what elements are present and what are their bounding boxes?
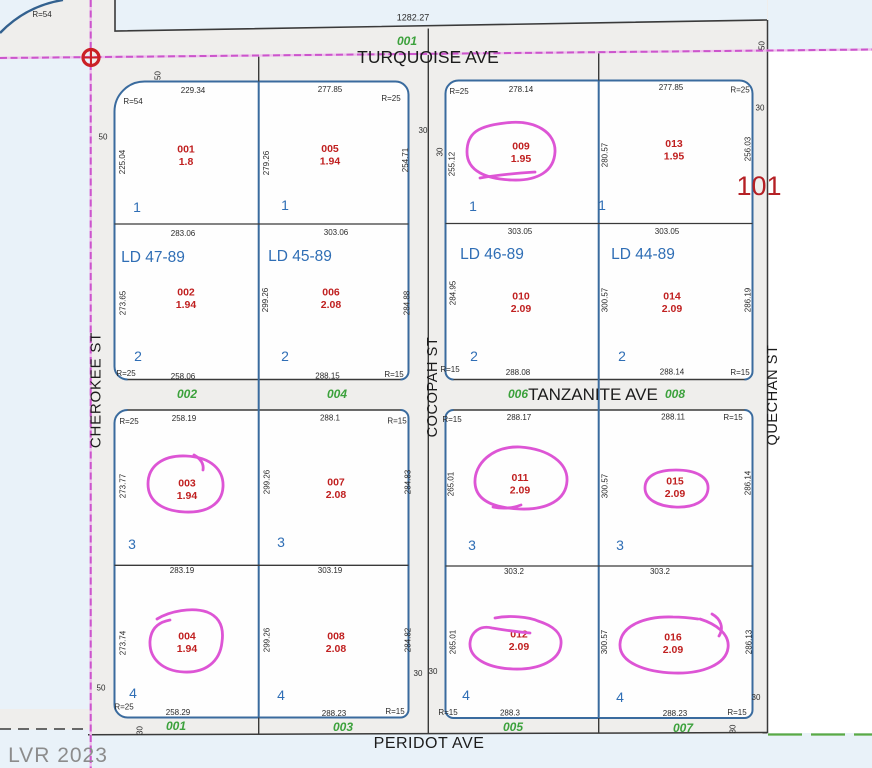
- svg-text:303.2: 303.2: [504, 567, 525, 576]
- svg-text:258.06: 258.06: [171, 372, 196, 381]
- svg-text:50: 50: [97, 684, 106, 693]
- svg-text:283.19: 283.19: [170, 566, 195, 575]
- svg-text:LD 45-89: LD 45-89: [268, 248, 332, 265]
- svg-text:2.08: 2.08: [321, 299, 342, 311]
- svg-text:PERIDOT AVE: PERIDOT AVE: [374, 735, 485, 752]
- svg-text:30: 30: [419, 126, 428, 135]
- svg-text:273.77: 273.77: [119, 473, 128, 498]
- svg-text:R=15: R=15: [730, 368, 750, 377]
- svg-text:299.26: 299.26: [263, 627, 272, 652]
- svg-text:R=15: R=15: [384, 370, 404, 379]
- svg-text:R=15: R=15: [442, 415, 462, 424]
- svg-text:2: 2: [134, 348, 142, 364]
- svg-text:3: 3: [468, 537, 476, 553]
- svg-text:30: 30: [756, 104, 765, 113]
- svg-text:30: 30: [414, 669, 423, 678]
- svg-text:50: 50: [758, 41, 767, 50]
- svg-text:303.19: 303.19: [318, 566, 343, 575]
- svg-text:4: 4: [616, 689, 624, 705]
- svg-text:004: 004: [327, 387, 347, 401]
- svg-text:303.05: 303.05: [508, 227, 533, 236]
- svg-text:1: 1: [598, 197, 606, 213]
- svg-text:2: 2: [281, 348, 289, 364]
- svg-text:006: 006: [322, 287, 340, 299]
- svg-text:R=25: R=25: [114, 703, 134, 712]
- svg-text:258.29: 258.29: [166, 708, 191, 717]
- svg-text:279.26: 279.26: [262, 150, 271, 175]
- svg-text:R=25: R=25: [449, 87, 469, 96]
- svg-text:007: 007: [673, 721, 694, 735]
- svg-text:277.85: 277.85: [659, 83, 684, 92]
- svg-text:254.71: 254.71: [401, 147, 410, 172]
- svg-text:303.05: 303.05: [655, 227, 680, 236]
- svg-text:R=54: R=54: [123, 97, 143, 106]
- svg-text:300.57: 300.57: [601, 287, 610, 312]
- svg-text:3: 3: [616, 537, 624, 553]
- svg-text:QUECHAN ST: QUECHAN ST: [765, 344, 781, 445]
- svg-text:283.06: 283.06: [171, 229, 196, 238]
- svg-text:300.57: 300.57: [601, 473, 610, 498]
- svg-text:1.94: 1.94: [176, 299, 197, 311]
- svg-text:288.11: 288.11: [661, 413, 685, 422]
- svg-text:007: 007: [327, 477, 345, 489]
- svg-text:2.09: 2.09: [510, 485, 531, 497]
- svg-text:R=15: R=15: [723, 413, 743, 422]
- svg-text:R=54: R=54: [32, 10, 52, 19]
- svg-text:001: 001: [397, 34, 417, 48]
- svg-text:300.57: 300.57: [600, 629, 609, 654]
- svg-text:288.14: 288.14: [660, 368, 685, 377]
- svg-text:002: 002: [177, 387, 197, 401]
- svg-text:008: 008: [665, 387, 685, 401]
- svg-text:255.12: 255.12: [448, 151, 457, 176]
- svg-text:50: 50: [99, 133, 108, 142]
- svg-text:101: 101: [736, 171, 781, 201]
- svg-text:R=25: R=25: [730, 86, 750, 95]
- svg-text:299.26: 299.26: [261, 287, 270, 312]
- svg-text:225.04: 225.04: [118, 149, 127, 174]
- svg-text:258.19: 258.19: [172, 414, 197, 423]
- svg-text:TURQUOISE AVE: TURQUOISE AVE: [357, 47, 499, 67]
- svg-text:2.09: 2.09: [665, 488, 686, 500]
- svg-text:2.09: 2.09: [511, 303, 532, 315]
- svg-text:286.19: 286.19: [744, 287, 753, 312]
- svg-text:1.94: 1.94: [177, 490, 198, 502]
- svg-text:2: 2: [618, 348, 626, 364]
- svg-text:30: 30: [752, 693, 761, 702]
- svg-text:R=15: R=15: [387, 417, 407, 426]
- svg-text:288.08: 288.08: [506, 368, 531, 377]
- svg-text:286.14: 286.14: [744, 470, 753, 495]
- svg-text:2.09: 2.09: [663, 644, 684, 656]
- svg-text:R=25: R=25: [116, 369, 136, 378]
- svg-text:011: 011: [512, 472, 529, 484]
- svg-text:2.09: 2.09: [509, 641, 530, 653]
- svg-text:1.94: 1.94: [320, 156, 341, 168]
- svg-text:303.2: 303.2: [650, 567, 671, 576]
- svg-text:1282.27: 1282.27: [397, 13, 430, 23]
- svg-text:002: 002: [177, 287, 195, 299]
- svg-text:R=25: R=25: [381, 94, 401, 103]
- svg-text:50: 50: [154, 71, 163, 80]
- svg-text:010: 010: [512, 291, 530, 303]
- svg-text:2.08: 2.08: [326, 489, 347, 501]
- svg-text:1.8: 1.8: [179, 156, 194, 168]
- svg-text:286.13: 286.13: [745, 629, 754, 654]
- svg-text:277.85: 277.85: [318, 85, 343, 94]
- svg-text:288.17: 288.17: [507, 413, 532, 422]
- svg-text:30: 30: [436, 147, 445, 156]
- svg-text:009: 009: [512, 141, 530, 153]
- svg-text:LVR 2023: LVR 2023: [8, 744, 108, 767]
- svg-text:003: 003: [178, 478, 196, 490]
- svg-text:1.95: 1.95: [511, 153, 532, 165]
- svg-text:001: 001: [177, 144, 195, 156]
- svg-text:30: 30: [429, 667, 438, 676]
- svg-text:TANZANITE AVE: TANZANITE AVE: [528, 385, 658, 404]
- svg-text:R=15: R=15: [727, 708, 747, 717]
- svg-text:256.03: 256.03: [744, 136, 753, 161]
- svg-text:R=15: R=15: [440, 365, 460, 374]
- svg-text:COCOPAH ST: COCOPAH ST: [425, 337, 441, 438]
- svg-text:280.57: 280.57: [601, 142, 610, 167]
- svg-text:1: 1: [469, 198, 477, 214]
- svg-text:265.01: 265.01: [449, 629, 458, 654]
- svg-text:288.23: 288.23: [322, 709, 347, 718]
- svg-text:015: 015: [666, 476, 684, 488]
- svg-text:006: 006: [508, 387, 528, 401]
- svg-text:1.95: 1.95: [664, 151, 685, 163]
- svg-text:CHEROKEE ST: CHEROKEE ST: [88, 332, 105, 448]
- svg-text:3: 3: [277, 534, 285, 550]
- svg-text:284.88: 284.88: [403, 290, 412, 315]
- svg-text:2.09: 2.09: [662, 303, 683, 315]
- svg-text:016: 016: [664, 632, 682, 644]
- svg-text:288.1: 288.1: [320, 414, 341, 423]
- svg-text:2.08: 2.08: [326, 643, 347, 655]
- svg-text:LD 46-89: LD 46-89: [460, 246, 524, 263]
- svg-text:1: 1: [133, 199, 141, 215]
- svg-text:303.06: 303.06: [324, 228, 349, 237]
- svg-text:3: 3: [128, 536, 136, 552]
- svg-text:013: 013: [665, 138, 683, 150]
- svg-text:001: 001: [166, 719, 186, 733]
- svg-text:008: 008: [327, 631, 345, 643]
- svg-text:284.83: 284.83: [404, 469, 413, 494]
- svg-text:278.14: 278.14: [509, 85, 534, 94]
- svg-text:229.34: 229.34: [181, 86, 206, 95]
- svg-text:4: 4: [277, 687, 285, 703]
- svg-text:30: 30: [136, 726, 145, 735]
- svg-text:4: 4: [462, 687, 470, 703]
- svg-text:003: 003: [333, 720, 353, 734]
- svg-text:284.95: 284.95: [449, 280, 458, 305]
- svg-text:288.23: 288.23: [663, 709, 688, 718]
- svg-text:005: 005: [321, 143, 339, 155]
- svg-text:005: 005: [503, 720, 523, 734]
- svg-text:4: 4: [129, 685, 137, 701]
- svg-text:1.94: 1.94: [177, 643, 198, 655]
- svg-text:273.65: 273.65: [119, 290, 128, 315]
- svg-text:R=25: R=25: [119, 417, 139, 426]
- svg-text:284.82: 284.82: [404, 627, 413, 652]
- svg-text:288.3: 288.3: [500, 709, 521, 718]
- svg-text:014: 014: [663, 291, 681, 303]
- svg-text:R=15: R=15: [385, 707, 405, 716]
- svg-text:30: 30: [729, 724, 738, 733]
- svg-text:1: 1: [281, 197, 289, 213]
- svg-text:LD 47-89: LD 47-89: [121, 249, 185, 266]
- svg-text:265.01: 265.01: [447, 471, 456, 496]
- svg-text:288.15: 288.15: [315, 372, 340, 381]
- svg-text:LD 44-89: LD 44-89: [611, 246, 675, 263]
- svg-text:273.74: 273.74: [119, 630, 128, 655]
- svg-text:R=15: R=15: [438, 708, 458, 717]
- svg-text:004: 004: [178, 631, 196, 643]
- svg-text:2: 2: [470, 348, 478, 364]
- svg-text:299.26: 299.26: [263, 469, 272, 494]
